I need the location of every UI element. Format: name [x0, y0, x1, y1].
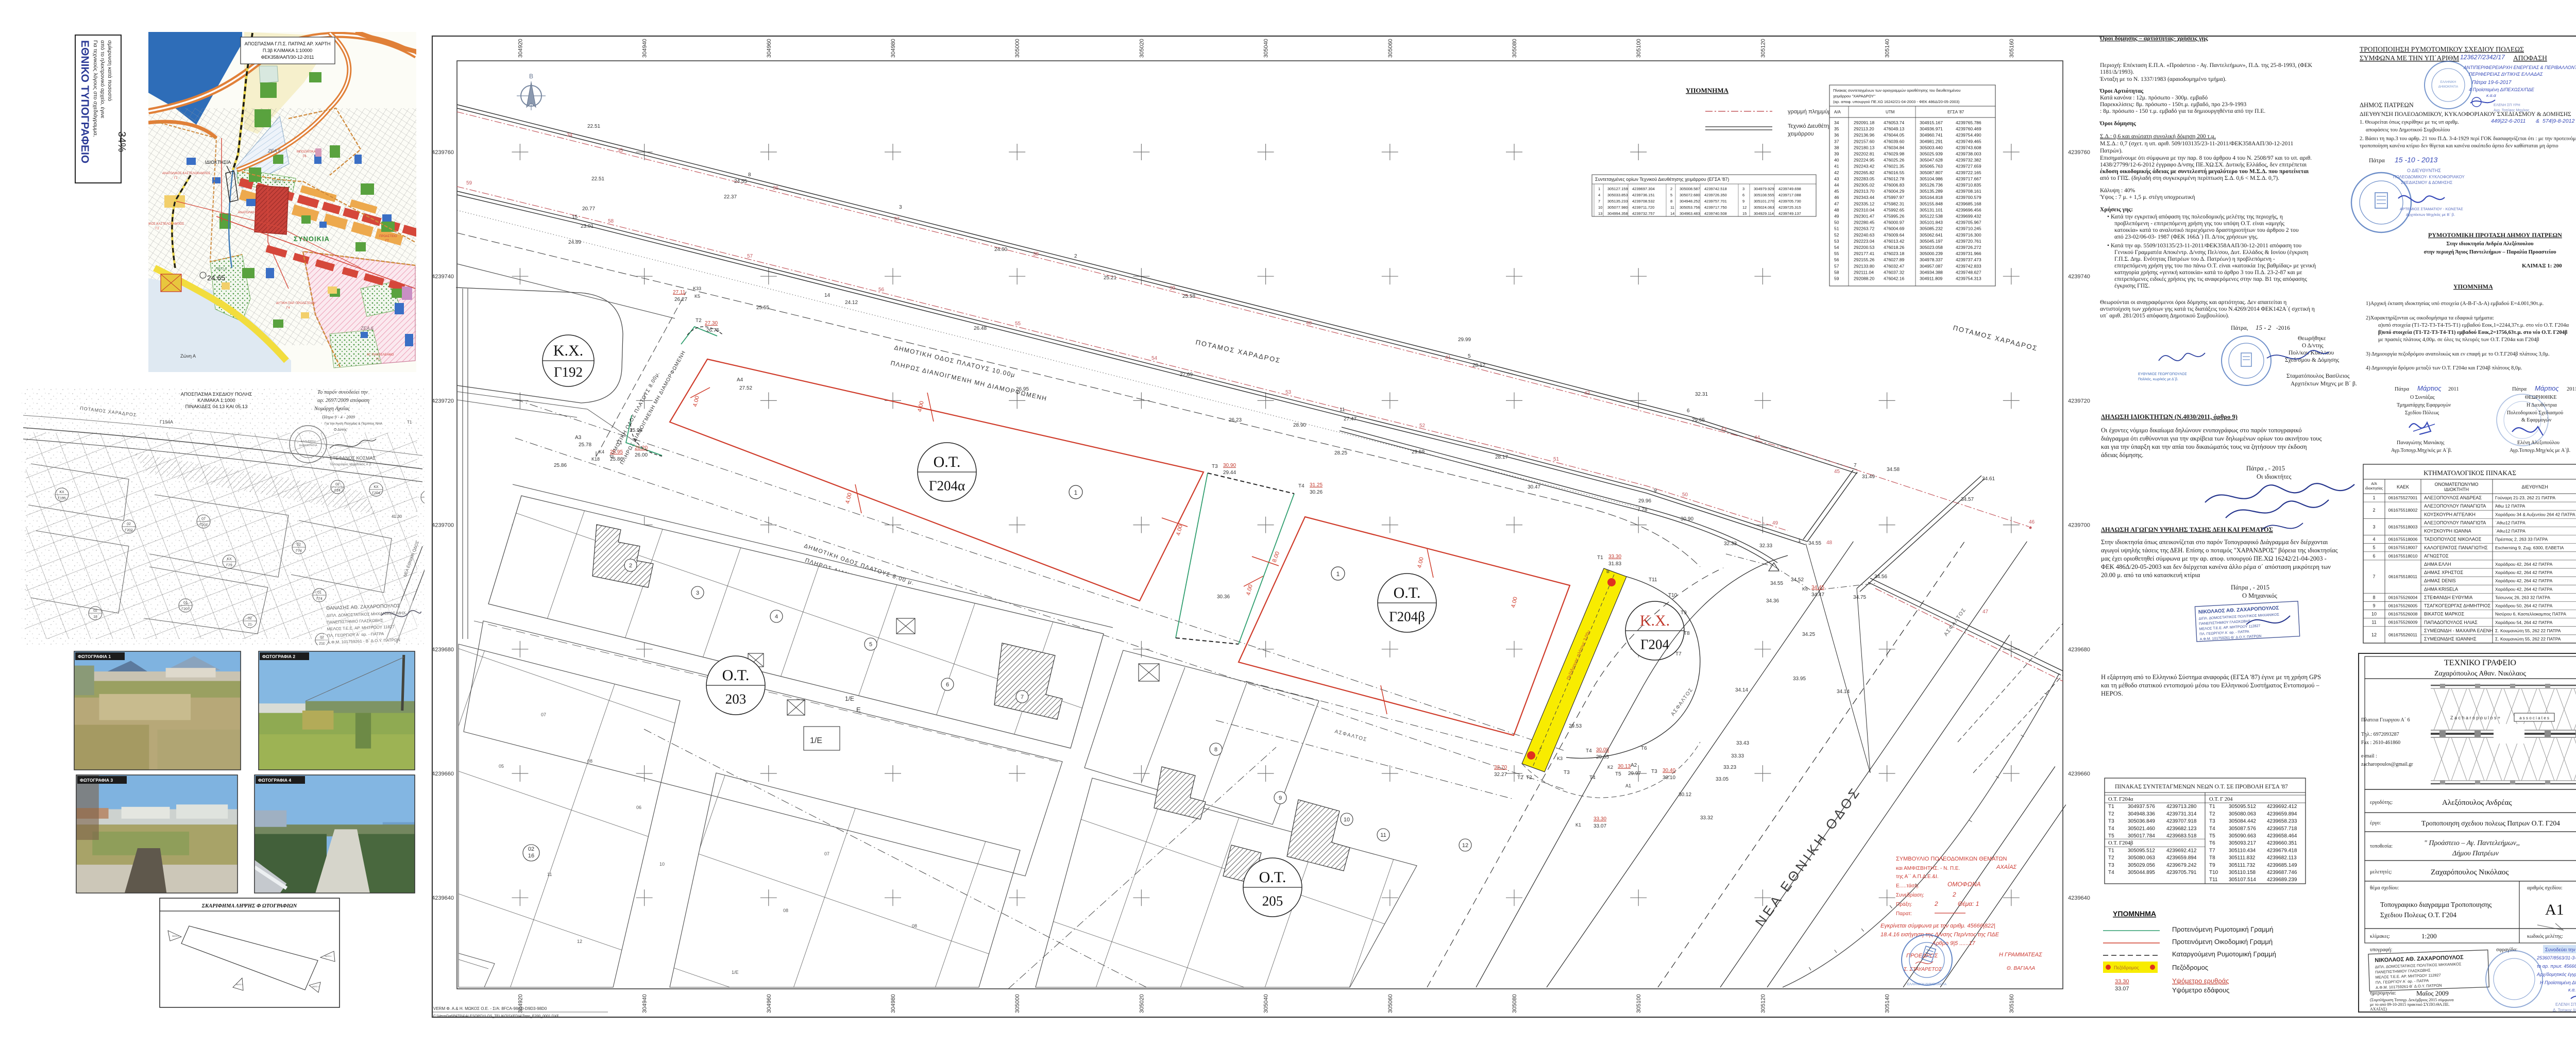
svg-text:292240.63: 292240.63 [1854, 232, 1874, 238]
svg-text:4239710.835: 4239710.835 [1956, 182, 1981, 188]
svg-text:3: 3 [1742, 187, 1744, 191]
svg-text:305090.663: 305090.663 [2229, 833, 2256, 839]
svg-text:Θεωρήθηκε: Θεωρήθηκε [2298, 335, 2326, 342]
svg-text:το αρ. πρωτ. 45666/822/18-4-20: το αρ. πρωτ. 45666/822/18-4-2016 [2537, 964, 2576, 969]
svg-text:ΕΛΛΗΝΙΚΗ: ΕΛΛΗΝΙΚΗ [301, 440, 315, 443]
svg-text:Κ.Χ.: Κ.Χ. [553, 342, 583, 359]
svg-text:Εγκρίνεται σύμφωνα με την αριθ: Εγκρίνεται σύμφωνα με την αριθμ. 45666|8… [1880, 923, 1995, 929]
svg-text:1438/27799/12-6-2012 έγγραφο Δ: 1438/27799/12-6-2012 έγγραφο Δ/νσης ΠΕ.Χ… [2100, 162, 2307, 168]
svg-text:10: 10 [1344, 817, 1350, 823]
svg-text:ΦΩΤΟ 2: ΦΩΤΟ 2 [172, 935, 179, 937]
svg-text:4239717.750: 4239717.750 [1704, 205, 1727, 210]
svg-text:061675518010: 061675518010 [2388, 553, 2418, 559]
svg-text:ΚΑΕΚ: ΚΑΕΚ [2397, 484, 2409, 490]
svg-text:30.13: 30.13 [1618, 764, 1631, 769]
svg-text:2: 2 [1934, 900, 1938, 907]
svg-text:23.01: 23.01 [581, 224, 594, 229]
svg-text:28.25: 28.25 [1334, 450, 1347, 456]
svg-text:33.07: 33.07 [2115, 986, 2129, 992]
svg-text:3: 3 [2372, 524, 2375, 529]
svg-text:• Κατά την εγκριτική απόφ: • Κατά την εγκριτική απόφαση της πολεοδο… [2107, 214, 2283, 220]
svg-text:29.96: 29.96 [1638, 498, 1651, 504]
svg-text:Γ204: Γ204 [1640, 636, 1670, 652]
svg-text:T4: T4 [2108, 826, 2114, 832]
svg-text:Συνοδεύει την με αρ. Πρωτ.: Συνοδεύει την με αρ. Πρωτ. [2545, 947, 2576, 953]
svg-text:18.4.16 εισήγηση της Δ/νσης Πε: 18.4.16 εισήγηση της Δ/νσης Περ/ντος της… [1880, 932, 1999, 938]
svg-text:κ.α.α: κ.α.α [2568, 987, 2576, 992]
svg-text:41: 41 [1445, 355, 1451, 361]
svg-text:476034.84: 476034.84 [1884, 145, 1904, 150]
svg-text:Δ. Τοπικος Μηχ/κος: Δ. Τοπικος Μηχ/κος [2553, 1008, 2576, 1013]
svg-text:4239710.245: 4239710.245 [1956, 226, 1981, 231]
svg-text:37: 37 [894, 216, 900, 222]
svg-text:T7: T7 [1675, 651, 1682, 657]
svg-text:Όροι δόμησης: Όροι δόμησης [2099, 120, 2136, 127]
svg-text:Πολεοδομικού Σχεδιασμού: Πολεοδομικού Σχεδιασμού [2507, 410, 2563, 416]
svg-text:ΣΤΕΦΑΝΙΔΗ ΕΥΘΥΜΙΑ: ΣΤΕΦΑΝΙΔΗ ΕΥΘΥΜΙΑ [2424, 595, 2472, 600]
svg-text:02: 02 [528, 846, 534, 852]
svg-text:Νισύρου 6, Καστελλοκαμπος ΠΑΤ: Νισύρου 6, Καστελλοκαμπος ΠΑΤΡΑ [2495, 612, 2566, 617]
svg-text:305008.587: 305008.587 [1680, 187, 1700, 191]
svg-text:Πάτρα 19-6-2017: Πάτρα 19-6-2017 [2472, 79, 2512, 86]
svg-text:29.53: 29.53 [1569, 723, 1582, 729]
svg-text:Γ2: Γ2 [156, 227, 159, 230]
svg-text:(Συμπλήρωση Τοπογρ. Δεκέμβριος: (Συμπλήρωση Τοπογρ. Δεκέμβριος 2015 σύμφ… [2370, 998, 2454, 1002]
svg-text:26.00: 26.00 [635, 452, 648, 458]
svg-text:305000: 305000 [1014, 39, 1021, 58]
svg-text:ΠΡΟΑΣΤΕΙΟ: ΠΡΟΑΣΤΕΙΟ [379, 235, 397, 238]
svg-text:25.55: 25.55 [756, 305, 769, 311]
svg-text:2: 2 [1952, 891, 1956, 898]
svg-text:1/Ε: 1/Ε [732, 970, 739, 975]
svg-text:2: 2 [2372, 508, 2375, 513]
svg-text:T4: T4 [2108, 870, 2114, 875]
svg-text:4239699.432: 4239699.432 [1956, 214, 1981, 219]
svg-text:40: 40 [1306, 321, 1312, 326]
svg-text:48: 48 [1826, 540, 1833, 546]
svg-text:4239743.608: 4239743.608 [1956, 145, 1981, 150]
svg-text:K4: K4 [599, 449, 604, 454]
svg-text:305003.440: 305003.440 [1920, 145, 1943, 150]
svg-text:ΥΠΟΜΝΗΜΑ: ΥΠΟΜΝΗΜΑ [2113, 909, 2156, 918]
svg-text:4239731.966: 4239731.966 [1956, 251, 1981, 256]
svg-text:Ο Μηχανικός: Ο Μηχανικός [2242, 592, 2277, 599]
svg-text:4239697.304: 4239697.304 [1632, 187, 1655, 191]
svg-text:32.33: 32.33 [1724, 541, 1737, 547]
svg-text:475997.97: 475997.97 [1884, 195, 1904, 200]
svg-text:Fax : 2610-461860: Fax : 2610-461860 [2361, 740, 2400, 746]
svg-text:ΚΛΙΜΑΞ 1: 200: ΚΛΙΜΑΞ 1: 200 [2522, 263, 2562, 269]
svg-text:A4: A4 [737, 377, 743, 383]
svg-text:ΣΤΕΦΑΝΟΣ ΚΟΣΜΑΣ: ΣΤΕΦΑΝΟΣ ΚΟΣΜΑΣ [330, 456, 376, 461]
svg-text:8: 8 [1214, 747, 1217, 753]
svg-text:292310.04: 292310.04 [1854, 207, 1874, 212]
svg-text:Τοπογράφος Μηχανικός Α΄β: Τοπογράφος Μηχανικός Α΄β [330, 462, 371, 466]
svg-text:Τμηματάρχης Εφαρμογών: Τμηματάρχης Εφαρμογών [2397, 402, 2451, 408]
svg-text:2: 2 [629, 563, 632, 569]
svg-text:4: 4 [775, 614, 778, 620]
svg-text:305140: 305140 [1885, 994, 1891, 1013]
svg-text:305104.986: 305104.986 [1920, 176, 1943, 181]
svg-text:K6: K6 [1802, 586, 1808, 592]
svg-text:304937.576: 304937.576 [2128, 804, 2155, 810]
svg-text:304934.388: 304934.388 [1920, 269, 1943, 275]
svg-text:29.97: 29.97 [1628, 771, 1641, 777]
svg-text:305120: 305120 [1760, 39, 1766, 58]
svg-text:476049.13: 476049.13 [1884, 126, 1904, 131]
svg-text:4239705.967: 4239705.967 [1956, 220, 1981, 225]
svg-text:4239732.382: 4239732.382 [1956, 158, 1981, 163]
svg-text:305107.514: 305107.514 [2229, 877, 2256, 883]
svg-text:ΚΑΛΟΓΕΡΑΤΟΣ ΠΑΝΑΓΙΩΤΗΣ: ΚΑΛΟΓΕΡΑΤΟΣ ΠΑΝΑΓΙΩΤΗΣ [2424, 545, 2488, 550]
svg-text:ΙΔΙΟΚΤΗΤΗ: ΙΔΙΟΚΤΗΤΗ [2444, 487, 2469, 492]
svg-text:Σχεδιου Πολεως Ο.Τ. Γ204: Σχεδιου Πολεως Ο.Τ. Γ204 [2380, 911, 2456, 919]
svg-text:08: 08 [587, 759, 592, 764]
svg-text:Ο Συντάξας: Ο Συντάξας [2410, 395, 2435, 400]
svg-text:Πράξη:: Πράξη: [1896, 901, 1912, 907]
svg-text:ΔΗΜΑ KRISELA: ΔΗΜΑ KRISELA [2424, 586, 2458, 592]
svg-text:ΑΝΤΙΠΕΡΙΦΕΡΕΙΑΡΧΗ ΕΝΕΡΓΕΙΑΣ: ΑΝΤΙΠΕΡΙΦΕΡΕΙΑΡΧΗ ΕΝΕΡΓΕΙΑΣ & ΠΕΡΙΒΑΛΛΟΝ… [2463, 65, 2576, 70]
svg-text:Χαράδρου 42, 264 42 ΠΑΤΡΑ: Χαράδρου 42, 264 42 ΠΑΤΡΑ [2495, 578, 2553, 583]
svg-text:ΔΗΜΟΣ ΠΑΤΡΕΩΝ: ΔΗΜΟΣ ΠΑΤΡΕΩΝ [2360, 102, 2414, 109]
svg-text:40: 40 [1834, 158, 1839, 163]
svg-text:4239692.412: 4239692.412 [2166, 848, 2197, 853]
svg-text:292224.95: 292224.95 [1854, 158, 1874, 163]
svg-text:12: 12 [1462, 842, 1468, 849]
svg-text:07: 07 [824, 851, 829, 856]
svg-text:4239657.718: 4239657.718 [2267, 826, 2297, 832]
svg-text:ΑΠΟΣΠΑΣΜΑ ΣΧΕΔΙΟΥ ΠΟΛΗΣ: ΑΠΟΣΠΑΣΜΑ ΣΧΕΔΙΟΥ ΠΟΛΗΣ [181, 392, 252, 397]
svg-text:ΥΠΟΜΝΗΜΑ: ΥΠΟΜΝΗΜΑ [1686, 87, 1729, 94]
svg-text:ΑΝΑΤΟΛΙΚΟΣ ΚΑΣΤΕΛΟΚΑΜΠΟΣ: ΑΝΑΤΟΛΙΚΟΣ ΚΑΣΤΕΛΟΚΑΜΠΟΣ [162, 172, 210, 175]
svg-text:253607/8563/31-3-14 εγκριση/Γω: 253607/8563/31-3-14 εγκριση/ΓωΔ [2536, 955, 2576, 960]
svg-text:ΦΩΤΟ 4: ΦΩΤΟ 4 [325, 955, 331, 957]
svg-text:επιτρεπόμενες ειδικές χρήσεις: επιτρεπόμενες ειδικές χρήσεις γης τις αν… [2114, 276, 2307, 282]
svg-text:4239685.149: 4239685.149 [2267, 863, 2297, 868]
svg-text:292343.44: 292343.44 [1854, 195, 1874, 200]
svg-text:305084.442: 305084.442 [2229, 819, 2256, 824]
svg-text:ΠΕΠ 6: ΠΕΠ 6 [215, 266, 227, 271]
svg-text:ΔΗΜΑ ΕΛΛΗ: ΔΗΜΑ ΕΛΛΗ [2424, 562, 2451, 567]
svg-text:34.56: 34.56 [1874, 574, 1887, 580]
svg-text:Γ5: Γ5 [376, 358, 380, 361]
svg-text:Υψόμετρο εδάφους: Υψόμετρο εδάφους [2172, 986, 2229, 994]
svg-text:Ε.....τάση:: Ε.....τάση: [1896, 883, 1919, 889]
svg-text:12: 12 [577, 939, 582, 944]
svg-text:4239713.280: 4239713.280 [2166, 804, 2197, 810]
svg-text:ΖΕΑ 6: ΖΕΑ 6 [360, 326, 374, 331]
svg-text:292301.47: 292301.47 [1854, 214, 1874, 219]
svg-text:34.61: 34.61 [1982, 476, 1995, 482]
svg-text:T5: T5 [2108, 833, 2114, 839]
svg-text:στην περιοχή Άγιος Παντελεήμων: στην περιοχή Άγιος Παντελεήμων – Παραλία… [2424, 249, 2556, 255]
svg-text:zacharopoulos@gmail.gr: zacharopoulos@gmail.gr [2361, 762, 2413, 767]
svg-text:T1: T1 [2209, 804, 2215, 810]
svg-text:ΕΘΝΙΚΟ ΤΥΠΟΓΡΑΦΕΙΟ: ΕΘΝΙΚΟ ΤΥΠΟΓΡΑΦΕΙΟ [79, 40, 91, 163]
svg-text:ΦΕΚ358/ΑΑΠ/30-12-2011: ΦΕΚ358/ΑΑΠ/30-12-2011 [261, 55, 314, 60]
svg-text:304960: 304960 [766, 39, 772, 58]
svg-text:μας έχει οριοθετηθεί σύμφωνα μ: μας έχει οριοθετηθεί σύμφωνα με την αρ. … [2101, 555, 2327, 562]
svg-text:κατηγορία χρήσης «γενική κατοι: κατηγορία χρήσης «γενική κατοικία» κατά … [2114, 269, 2302, 276]
svg-text:ΒΙΚΑΤΟΣ ΜΑΡΚΟΣ: ΒΙΚΑΤΟΣ ΜΑΡΚΟΣ [2424, 612, 2464, 617]
svg-text:a s s o c i a t e s: a s s o c i a t e s [2519, 716, 2549, 720]
svg-text:4239740.508: 4239740.508 [1704, 211, 1727, 216]
svg-text:476044.05: 476044.05 [1884, 132, 1904, 138]
svg-text:32.31: 32.31 [1695, 392, 1708, 397]
svg-text:και τη μέθοδο στατικού εντοπισ: και τη μέθοδο στατικού εντοπισμού μέσω τ… [2101, 682, 2320, 689]
svg-text:305072.680: 305072.680 [1680, 193, 1700, 197]
svg-text:45: 45 [1834, 189, 1839, 194]
svg-text:Ο.Τ. Γ204α: Ο.Τ. Γ204α [2108, 797, 2133, 802]
svg-text:4239717.088: 4239717.088 [1778, 193, 1801, 197]
svg-text:42: 42 [1584, 391, 1590, 396]
svg-text:Γ204β: Γ204β [1389, 609, 1425, 624]
svg-text:Χαράδρου 50, 264 42 ΠΑΤΡΑ: Χαράδρου 50, 264 42 ΠΑΤΡΑ [2495, 603, 2553, 609]
svg-text:32.70: 32.70 [1494, 765, 1507, 770]
svg-text:305025.939: 305025.939 [1920, 151, 1943, 157]
svg-text:ΙΔΙΟΚΤΗΣΙΑ: ΙΔΙΟΚΤΗΣΙΑ [205, 160, 231, 165]
svg-text:κατοικία» κατά το αναλυτικό πε: κατοικία» κατά το αναλυτικό περιεχόμενο … [2114, 227, 2299, 233]
svg-text:ΖΕΑ 5: ΖΕΑ 5 [267, 148, 281, 154]
svg-text:A3: A3 [575, 435, 582, 441]
svg-text:Θ. ΒΑΓΙΑΛΑ: Θ. ΒΑΓΙΑΛΑ [2007, 966, 2035, 971]
svg-text:4239740: 4239740 [2068, 274, 2090, 280]
svg-text:ΕΛΕΝΗ ΣΠ ΥΡΗ: ΕΛΕΝΗ ΣΠ ΥΡΗ [2494, 104, 2520, 107]
svg-text:305101.843: 305101.843 [1920, 220, 1943, 225]
svg-text:1181/Δ/1993).: 1181/Δ/1993). [2100, 69, 2134, 75]
svg-text:33.43: 33.43 [1736, 740, 1749, 746]
svg-text:4: 4 [1598, 193, 1600, 197]
svg-text:292111.04: 292111.04 [1854, 269, 1874, 275]
svg-text:4239749.698: 4239749.698 [1778, 187, 1801, 191]
svg-text:34%: 34% [116, 131, 127, 152]
svg-text:061675526009: 061675526009 [2388, 620, 2418, 625]
svg-text:προβλεπόμενη - επιτρεπόμενη χρ: προβλεπόμενη - επιτρεπόμενη χρήση γης το… [2114, 221, 2285, 227]
svg-text:T9: T9 [2209, 863, 2215, 868]
svg-text:Κ.Χ.: Κ.Χ. [1640, 612, 1670, 629]
svg-text:Αλεξόπουλος Ανδρέας: Αλεξόπουλος Ανδρέας [2442, 799, 2512, 807]
svg-text:305100: 305100 [1636, 39, 1642, 58]
svg-text:8: 8 [748, 172, 751, 178]
svg-text:292223.04: 292223.04 [1854, 239, 1874, 244]
svg-text:ΣΧΕΔΙΑΣΜΟΥ & ΔΟΜΗΣΗΣ: ΣΧΕΔΙΑΣΜΟΥ & ΔΟΜΗΣΗΣ [2401, 180, 2452, 185]
svg-text:305000.239: 305000.239 [1920, 251, 1943, 256]
svg-text:38: 38 [1033, 251, 1039, 257]
svg-text:292157.60: 292157.60 [1854, 139, 1874, 144]
svg-text:305020: 305020 [1139, 994, 1145, 1013]
svg-text:29.65: 29.65 [1692, 417, 1705, 423]
svg-text:1/Ε: 1/Ε [845, 695, 854, 702]
svg-text:34.45: 34.45 [1811, 585, 1824, 591]
svg-text:4239660: 4239660 [432, 771, 454, 777]
svg-text:305110.158: 305110.158 [2229, 870, 2256, 875]
svg-text:08: 08 [912, 923, 917, 929]
svg-text:292263.72: 292263.72 [1854, 226, 1874, 231]
svg-text:Χρήσεις γης:: Χρήσεις γης: [2100, 207, 2133, 213]
svg-text:35: 35 [617, 148, 623, 154]
svg-text:34.14: 34.14 [1837, 689, 1850, 695]
svg-text:4239659.894: 4239659.894 [2166, 855, 2197, 861]
svg-text:02: 02 [335, 483, 340, 486]
svg-text:305045.197: 305045.197 [1920, 239, 1943, 244]
svg-text:Χαράδρου 42, 264 42 ΠΑΤΡΑ: Χαράδρου 42, 264 42 ΠΑΤΡΑ [2495, 570, 2553, 575]
svg-text:T3: T3 [1212, 464, 1218, 469]
svg-text:Π.3β ΚΛΙΜΑΚΑ 1:10000: Π.3β ΚΛΙΜΑΚΑ 1:10000 [263, 48, 312, 53]
svg-text:ΦΩΤΟΓΡΑΦΙΑ 1: ΦΩΤΟΓΡΑΦΙΑ 1 [78, 654, 111, 659]
svg-text:ΑΠΟΣΠΑΣΜΑ Γ.Π.Σ. ΠΑΤΡΑΣ ΑΡ. Χ: ΑΠΟΣΠΑΣΜΑ Γ.Π.Σ. ΠΑΤΡΑΣ ΑΡ. ΧΑΡΤΗ [245, 41, 331, 46]
svg-text:με πρασιές πλάτους 4,00μ. σε ό: με πρασιές πλάτους 4,00μ. σε όλες τις πλ… [2378, 337, 2539, 343]
svg-text:ΔΗΜΟΚΡΑΤΙΑ: ΔΗΜΟΚΡΑΤΙΑ [299, 444, 317, 447]
svg-text:Οι έχοντες νόμιμο δικαίωμα δηλ: Οι έχοντες νόμιμο δικαίωμα δηλώνουν ενυπ… [2101, 427, 2302, 434]
svg-text:11: 11 [547, 872, 552, 877]
svg-text:T2: T2 [696, 318, 702, 324]
svg-text:K3: K3 [1557, 756, 1563, 761]
svg-text:Σ.Δ.: 0,6 και ανώτατη συνολική: Σ.Δ.: 0,6 και ανώτατη συνολική δόμηση 20… [2100, 133, 2216, 140]
svg-text:305127.159: 305127.159 [1607, 187, 1628, 191]
svg-text:11: 11 [2371, 620, 2376, 625]
svg-text:4 Προϊσταμένη ΔΙΠΕΧΩΣΧ/ΠΔΕ: 4 Προϊσταμένη ΔΙΠΕΧΩΣΧ/ΠΔΕ [2469, 87, 2535, 92]
svg-text:4239682.123: 4239682.123 [2166, 826, 2197, 832]
svg-text:Μάρτιος: Μάρτιος [2417, 384, 2442, 392]
svg-text:έκδοση οικοδομικής άδειας με σ: έκδοση οικοδομικής άδειας με συντελεστή … [2100, 168, 2309, 175]
svg-text:Ο.Τ.: Ο.Τ. [934, 453, 961, 470]
svg-text:4239689.239: 4239689.239 [2267, 877, 2297, 883]
svg-text:Γ204α: Γ204α [929, 478, 965, 493]
svg-text:24.60: 24.60 [994, 247, 1007, 252]
svg-text:34.14: 34.14 [1735, 687, 1748, 693]
svg-text:ΣΥΜΒΟΥΛΙΟ ΠΟΛΕΟΔΟΜΙΚΩΝ ΘΕΜΑΤΩΝ: ΣΥΜΒΟΥΛΙΟ ΠΟΛΕΟΔΟΜΙΚΩΝ ΘΕΜΑΤΩΝ [1896, 856, 2007, 862]
svg-text:T11: T11 [2209, 877, 2218, 883]
svg-text:και για την ύπαρξη και την απί: και για την ύπαρξη και την απία του δικα… [2101, 443, 2307, 450]
svg-text:10: 10 [2371, 612, 2377, 617]
svg-text:52: 52 [1419, 423, 1426, 429]
svg-text:26.20: 26.20 [635, 445, 648, 451]
svg-text:4239680: 4239680 [2068, 647, 2090, 653]
svg-text:ΣΥΜΕΩΝΙΔΗ - ΜΑΧΑΙΡΑ ΕΛΕΝΗ: ΣΥΜΕΩΝΙΔΗ - ΜΑΧΑΙΡΑ ΕΛΕΝΗ [2424, 628, 2493, 633]
svg-text:ΚΟΥΣΚΟΥΡΗ ΑΓΓΕΛΙΚΗ: ΚΟΥΣΚΟΥΡΗ ΑΓΓΕΛΙΚΗ [2424, 512, 2476, 517]
svg-text:VERM Φ. Α.& Η. ΜΩΚΟΣ Ο.Ε. -: VERM Φ. Α.& Η. ΜΩΚΟΣ Ο.Ε. - Σ/Α: 8FCA-98… [433, 1006, 547, 1011]
svg-text:41: 41 [1834, 164, 1839, 169]
svg-text:27.11: 27.11 [673, 290, 686, 295]
svg-text:123627/2342/17: 123627/2342/17 [2460, 54, 2505, 61]
svg-text:6: 6 [1687, 408, 1690, 414]
svg-text:27.69: 27.69 [1180, 372, 1193, 378]
svg-text:9: 9 [1654, 488, 1657, 494]
svg-text:26.27: 26.27 [674, 297, 687, 302]
svg-text:Κάλυψη : 40%: Κάλυψη : 40% [2100, 188, 2136, 194]
svg-text:Παρεκκλίσεις: 8μ. πρόσωπο - 1: Παρεκκλίσεις: 8μ. πρόσωπο - 150τ.μ. εμβα… [2100, 102, 2247, 108]
svg-text:4239731.314: 4239731.314 [2166, 811, 2197, 817]
svg-text:31.49: 31.49 [1862, 474, 1875, 480]
svg-text:2011: 2011 [2448, 386, 2459, 392]
svg-text:49: 49 [1772, 520, 1778, 526]
svg-text:ΠΙΝΑΚΙΔΕΣ 04.13 ΚΑΙ 05.13: ΠΙΝΑΚΙΔΕΣ 04.13 ΚΑΙ 05.13 [185, 404, 247, 410]
svg-text:αριθμός σχεδίου:: αριθμός σχεδίου: [2527, 885, 2563, 891]
svg-text:36: 36 [773, 186, 779, 191]
svg-text:1:200: 1:200 [2421, 932, 2437, 940]
svg-text:ΤΣΑΓΚΟΓΕΩΡΓΑΣ ΔΗΜΗΤΡΙΟΣ: ΤΣΑΓΚΟΓΕΩΡΓΑΣ ΔΗΜΗΤΡΙΟΣ [2424, 603, 2491, 609]
svg-text:4239720: 4239720 [2068, 398, 2090, 404]
svg-text:Γ204: Γ204 [372, 492, 380, 495]
svg-text:476037.32: 476037.32 [1884, 269, 1904, 275]
svg-text:Γ195: Γ195 [58, 497, 66, 500]
svg-text:Ο.Τ. Γ204β: Ο.Τ. Γ204β [2108, 840, 2133, 846]
svg-text:02: 02 [248, 617, 252, 620]
svg-text:Πάτρα: Πάτρα [2395, 386, 2410, 392]
svg-text:Πάτρα 9 - 4 - 2009: Πάτρα 9 - 4 - 2009 [321, 414, 355, 419]
svg-text:Σ. Κουμανιώτη 55, 262 22 ΠΑΤΡΑ: Σ. Κουμανιώτη 55, 262 22 ΠΑΤΡΑ [2495, 628, 2561, 633]
svg-text:4239700: 4239700 [2068, 522, 2090, 529]
svg-text:53: 53 [1834, 239, 1839, 244]
svg-text:5: 5 [869, 642, 872, 648]
svg-text:304940: 304940 [642, 994, 648, 1013]
svg-text:449|22-6-2011: 449|22-6-2011 [2491, 118, 2526, 124]
svg-text:επιτρεπόμενη χρήση γης του πιο: επιτρεπόμενη χρήση γης του πιο πάνω Ο.Τ.… [2114, 263, 2316, 269]
svg-text:΄Αθω12 ΠΑΤΡΑ: ΄Αθω12 ΠΑΤΡΑ [2495, 520, 2526, 525]
svg-text:26.48: 26.48 [974, 326, 987, 331]
svg-text:ΦΩΤΟΓΡΑΦΙΑ 2: ΦΩΤΟΓΡΑΦΙΑ 2 [262, 654, 295, 659]
svg-text:K33: K33 [693, 286, 701, 291]
svg-text:ΔΗΜΑΣ ΧΡΗΣΤΟΣ: ΔΗΜΑΣ ΧΡΗΣΤΟΣ [2424, 570, 2463, 575]
svg-text:476004.69: 476004.69 [1884, 226, 1904, 231]
svg-text:Νομάρχη Αχαΐας: Νομάρχη Αχαΐας [314, 406, 350, 412]
svg-text:305164.818: 305164.818 [1920, 195, 1943, 200]
svg-text:35: 35 [1834, 126, 1839, 131]
svg-text:4239725.315: 4239725.315 [1778, 205, 1801, 210]
svg-text:304978.337: 304978.337 [1920, 257, 1943, 262]
svg-text:476009.64: 476009.64 [1884, 232, 1904, 238]
svg-text:305080: 305080 [1512, 39, 1518, 58]
svg-text:7: 7 [2372, 574, 2375, 579]
svg-text:22.51: 22.51 [587, 124, 600, 129]
svg-text:304994.358: 304994.358 [1607, 211, 1628, 216]
svg-text:205: 205 [1262, 893, 1283, 908]
svg-text:061675526005: 061675526005 [2388, 603, 2418, 609]
svg-text:56: 56 [878, 287, 885, 293]
svg-text:4239660.351: 4239660.351 [2267, 840, 2297, 846]
svg-text:Γ6: Γ6 [303, 155, 307, 158]
svg-text:• Κατά την αρ. 5509/103135/2: • Κατά την αρ. 5509/103135/23-11-2011/ΦΕ… [2107, 243, 2301, 249]
svg-text:ΕΛΛΗΝΙΚΗ ΔΗΜΟΚΡΑΤΙΑ: ΕΛΛΗΝΙΚΗ ΔΗΜΟΚΡΑΤΙΑ [1907, 983, 1947, 986]
svg-text:ΑΠΟΦΑΣΗ: ΑΠΟΦΑΣΗ [2513, 54, 2547, 62]
svg-text:4239748.627: 4239748.627 [1956, 269, 1981, 275]
svg-text:061675518002: 061675518002 [2388, 508, 2418, 513]
svg-text:305021.460: 305021.460 [2128, 826, 2155, 832]
svg-text:K5: K5 [694, 294, 700, 299]
svg-text:Συντεταγμένες ορίων Τεχνικού Δ: Συντεταγμένες ορίων Τεχνικού Διευθέτησης… [1595, 177, 1729, 182]
svg-text:΄Αθω12 ΠΑΤΡΑ: ΄Αθω12 ΠΑΤΡΑ [2495, 529, 2526, 534]
svg-text:4239705.791: 4239705.791 [2166, 870, 2197, 875]
svg-text:12: 12 [1742, 205, 1747, 210]
svg-text:Χαράδρου 42, 264 42 ΠΑΤΡΑ: Χαράδρου 42, 264 42 ΠΑΤΡΑ [2495, 562, 2553, 567]
svg-text:305160: 305160 [2009, 994, 2015, 1013]
svg-text:34.55: 34.55 [1808, 541, 1821, 546]
svg-text:ΠΟΛΕΟΔΟΜΙΚΟΥ- ΚΥΚΛΟΦΟΡΙΑΚΟΥ: ΠΟΛΕΟΔΟΜΙΚΟΥ- ΚΥΚΛΟΦΟΡΙΑΚΟΥ [2393, 175, 2465, 179]
svg-text:T1: T1 [616, 440, 622, 446]
svg-text:476042.16: 476042.16 [1884, 276, 1904, 281]
svg-text:Γ194Α: Γ194Α [160, 419, 173, 425]
svg-text:7: 7 [1598, 199, 1600, 204]
svg-text:53: 53 [1285, 390, 1292, 395]
svg-text:Πλατεια Γεωργιου Α΄ 6: Πλατεια Γεωργιου Α΄ 6 [2361, 717, 2410, 723]
svg-text:Οι ιδιοκτήτες: Οι ιδιοκτήτες [2257, 473, 2292, 480]
svg-text:292177.41: 292177.41 [1854, 251, 1874, 256]
svg-text:ΑΓ. ΠΑΝΤΕΛΕΗΜΟ: ΑΓ. ΠΑΝΤΕΛΕΗΜΟ [367, 353, 394, 357]
svg-text:T1: T1 [1597, 555, 1603, 561]
svg-text:K1: K1 [1575, 822, 1581, 828]
svg-text:7: 7 [1854, 463, 1857, 468]
svg-text:Χαράδρου 34 & Αυξεντίου 264 4: Χαράδρου 34 & Αυξεντίου 264 42 ΠΑΤΡΑ [2495, 512, 2575, 517]
